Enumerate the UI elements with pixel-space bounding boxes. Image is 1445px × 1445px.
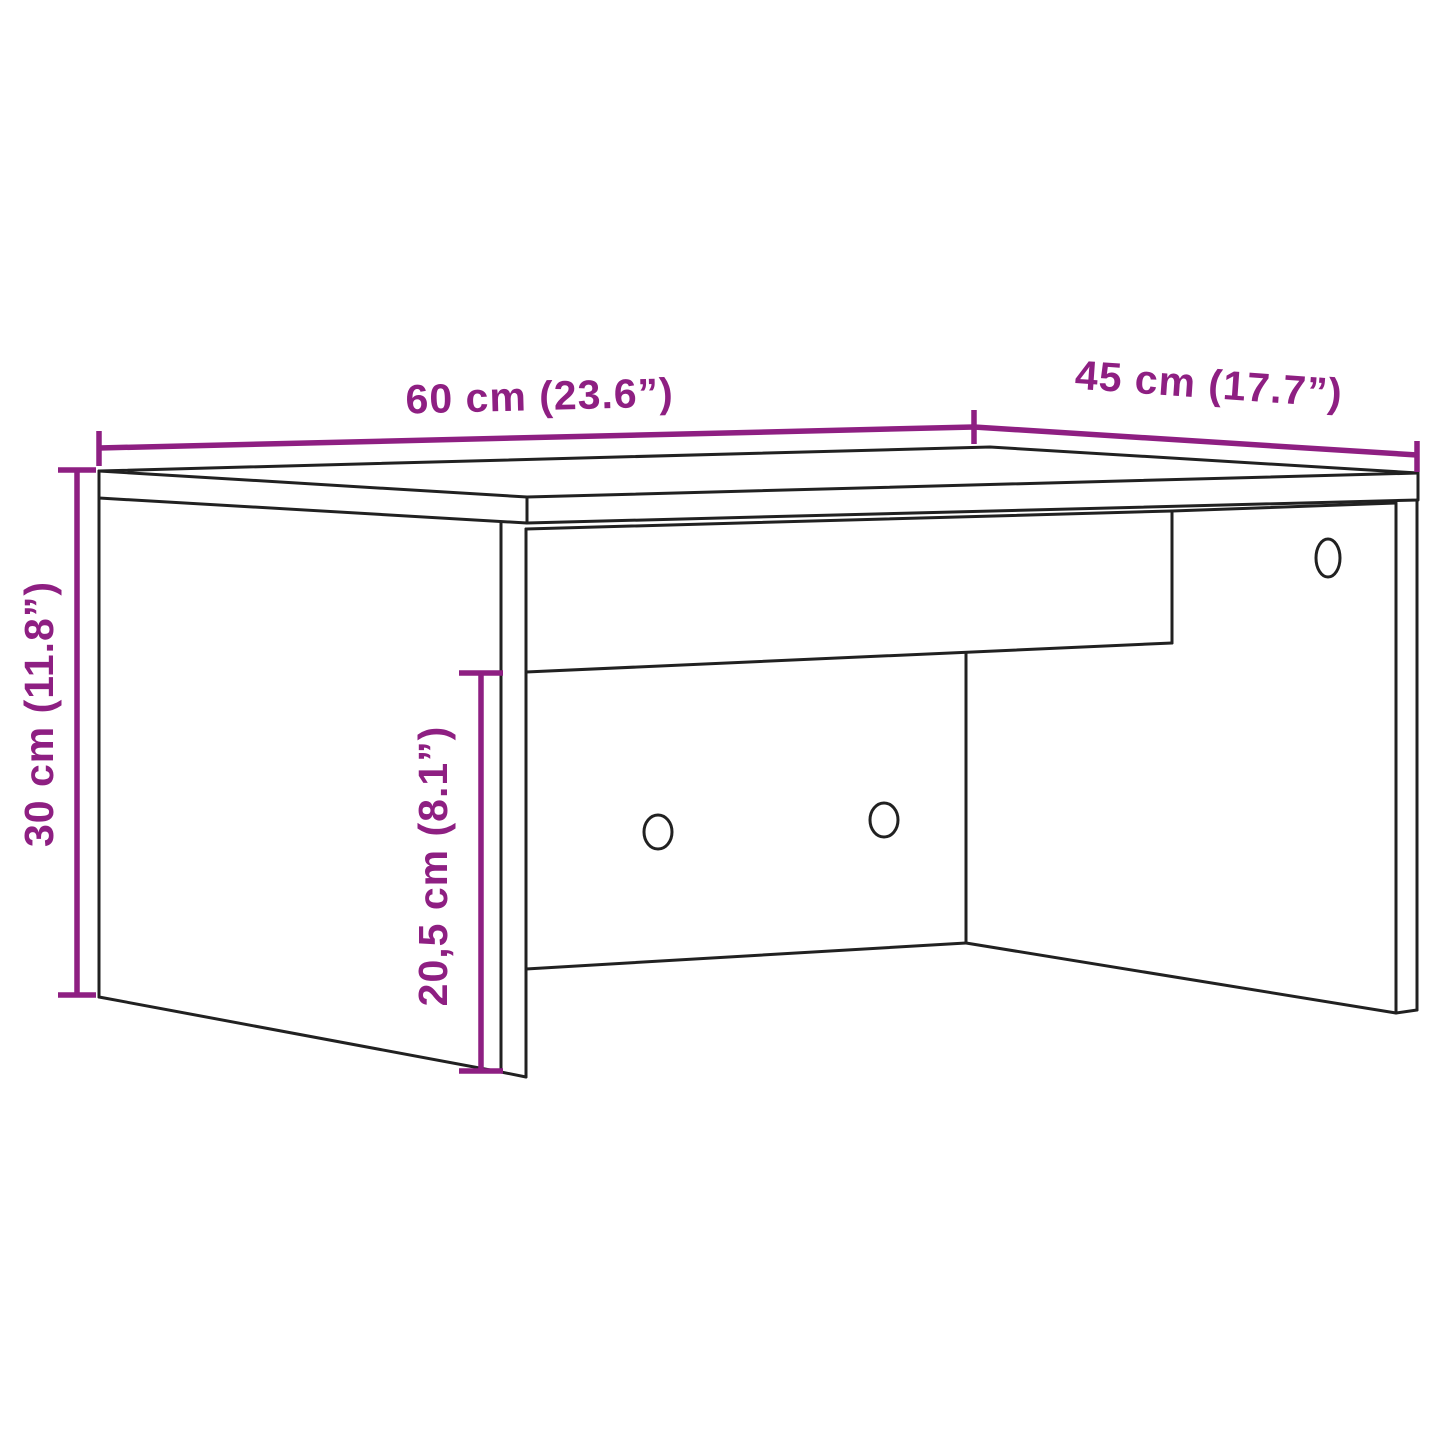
cable-hole-left: [644, 815, 672, 849]
left-side-panel: [99, 471, 526, 1077]
left-panel-front-edge-bottom: [501, 1072, 526, 1077]
rear-apron-rail: [526, 511, 1172, 672]
tabletop: [99, 447, 1418, 523]
depth-dimension-label: 45 cm (17.7”): [1074, 352, 1345, 417]
dimension-diagram: 60 cm (23.6”) 45 cm (17.7”) 30 cm (11.8”…: [0, 0, 1445, 1445]
right-side-panel: [966, 500, 1417, 1013]
tabletop-top-face: [99, 447, 1418, 497]
dimension-inner-height: 20,5 cm (8.1”): [410, 673, 503, 1071]
back-panel: [526, 653, 966, 969]
dimension-height: 30 cm (11.8”): [16, 470, 96, 995]
height-dimension-label: 30 cm (11.8”): [16, 581, 62, 847]
right-panel-front-edge-bottom: [1396, 1010, 1417, 1013]
width-dimension-label: 60 cm (23.6”): [405, 370, 674, 423]
back-panel-bottom-edge: [526, 943, 966, 969]
dimension-depth: 45 cm (17.7”): [974, 352, 1417, 472]
furniture-drawing: [99, 447, 1418, 1077]
left-panel-bottom-edge: [99, 997, 501, 1072]
tabletop-left-band: [99, 471, 527, 523]
width-dimension-line: [99, 427, 974, 448]
cable-hole-right: [870, 803, 898, 837]
side-panel-hole: [1316, 539, 1340, 577]
right-panel-bottom-inner-edge: [966, 943, 1396, 1013]
inner-height-dimension-label: 20,5 cm (8.1”): [410, 726, 456, 1007]
furniture-dimension-drawing: 60 cm (23.6”) 45 cm (17.7”) 30 cm (11.8”…: [0, 0, 1445, 1445]
apron-bottom-edge: [526, 643, 1172, 672]
